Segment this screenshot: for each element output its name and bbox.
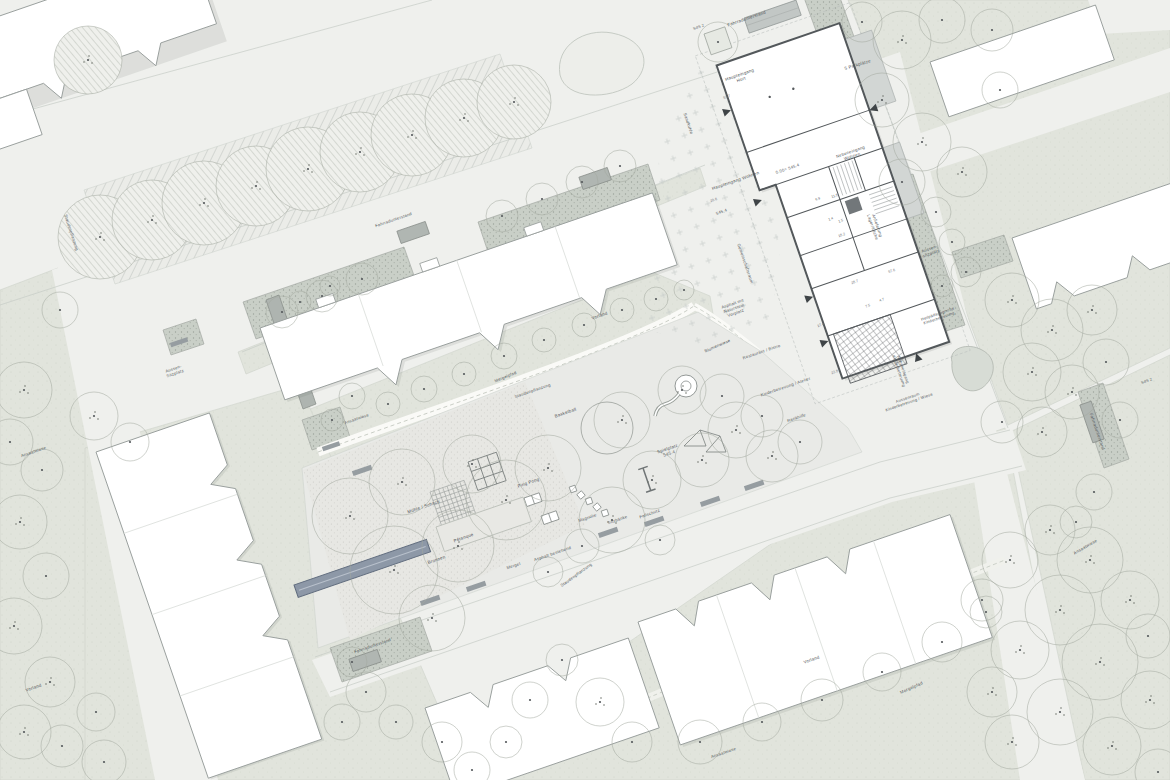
- tree-trunk-dot: [1031, 371, 1033, 373]
- tree-trunk-dot: [1059, 609, 1061, 611]
- tree-trunk-dot: [1049, 529, 1051, 531]
- tree-canopy-dot: [432, 613, 434, 615]
- tree-trunk-dot: [341, 721, 343, 723]
- tree-canopy-dot: [360, 147, 362, 149]
- tree-canopy-dot: [1052, 325, 1054, 327]
- tree-canopy-dot: [1037, 433, 1039, 435]
- tree-trunk-dot: [881, 671, 883, 673]
- tree-trunk-dot: [281, 311, 283, 313]
- tree-canopy-dot: [543, 469, 545, 471]
- tree-trunk-dot: [321, 295, 323, 297]
- tree-trunk-dot: [631, 741, 633, 743]
- tree-trunk-dot: [1119, 419, 1121, 421]
- tree-trunk-dot: [1089, 559, 1091, 561]
- tree-canopy-dot: [453, 547, 455, 549]
- tree-canopy-dot: [1115, 748, 1117, 750]
- tree-trunk-dot: [505, 741, 507, 743]
- tree-canopy-dot: [394, 565, 396, 567]
- tree-canopy-dot: [435, 620, 437, 622]
- tree-canopy-dot: [207, 205, 209, 207]
- tree-canopy-dot: [472, 459, 474, 461]
- tree-canopy-dot: [775, 458, 777, 460]
- tree-canopy-dot: [1047, 331, 1049, 333]
- tree-trunk-dot: [965, 271, 967, 273]
- tree-canopy-dot: [256, 181, 258, 183]
- tree-trunk-dot: [49, 681, 51, 683]
- tree-trunk-dot: [1059, 711, 1061, 713]
- tree-canopy-dot: [50, 677, 52, 679]
- tree-canopy-dot: [20, 517, 22, 519]
- tree-trunk-dot: [561, 659, 563, 661]
- tree-canopy-dot: [24, 385, 26, 387]
- tree-canopy-dot: [736, 425, 738, 427]
- tree-canopy-dot: [1072, 387, 1074, 389]
- tree-trunk-dot: [401, 481, 403, 483]
- tree-canopy-dot: [882, 95, 884, 97]
- tree-canopy-dot: [345, 517, 347, 519]
- tree-canopy-dot: [509, 502, 511, 504]
- tree-canopy-dot: [1015, 744, 1017, 746]
- tree-trunk-dot: [329, 285, 331, 287]
- tree-trunk-dot: [349, 515, 351, 517]
- tree-canopy-dot: [1055, 611, 1057, 613]
- tree-canopy-dot: [917, 143, 919, 145]
- tree-trunk-dot: [621, 309, 623, 311]
- tree-trunk-dot: [1129, 599, 1131, 601]
- tree-canopy-dot: [1053, 532, 1055, 534]
- tree-trunk-dot: [1099, 661, 1101, 663]
- tree-trunk-dot: [395, 721, 397, 723]
- tree-trunk-dot: [61, 745, 63, 747]
- tree-trunk-dot: [503, 355, 505, 357]
- tree-trunk-dot: [1009, 559, 1011, 561]
- tree-trunk-dot: [1011, 741, 1013, 743]
- tree-trunk-dot: [761, 721, 763, 723]
- tree-canopy-dot: [517, 104, 519, 106]
- tree-canopy-dot: [647, 481, 649, 483]
- tree-canopy-dot: [259, 188, 261, 190]
- tree-trunk-dot: [991, 691, 993, 693]
- tree-canopy-dot: [1133, 602, 1135, 604]
- tree-trunk-dot: [1157, 771, 1159, 773]
- tree-trunk-dot: [543, 339, 545, 341]
- tree-canopy-dot: [1107, 747, 1109, 749]
- tree-canopy-dot: [45, 683, 47, 685]
- tree-trunk-dot: [583, 324, 585, 326]
- tree-trunk-dot: [423, 388, 425, 390]
- tree-trunk-dot: [961, 171, 963, 173]
- tree-canopy-dot: [1042, 427, 1044, 429]
- tree-canopy-dot: [987, 693, 989, 695]
- tree-trunk-dot: [659, 539, 661, 541]
- tree-trunk-dot: [103, 761, 105, 763]
- tree-canopy-dot: [363, 154, 365, 156]
- tree-canopy-dot: [147, 221, 149, 223]
- tree-trunk-dot: [761, 415, 763, 417]
- tree-canopy-dot: [965, 174, 967, 176]
- tree-trunk-dot: [87, 59, 89, 61]
- tree-trunk-dot: [203, 202, 205, 204]
- tree-canopy-dot: [103, 239, 105, 241]
- tree-canopy-dot: [1093, 562, 1095, 564]
- tree-canopy-dot: [612, 515, 614, 517]
- tree-canopy-dot: [415, 137, 417, 139]
- tree-canopy-dot: [1095, 663, 1097, 665]
- tree-canopy-dot: [199, 204, 201, 206]
- tree-canopy-dot: [925, 144, 927, 146]
- tree-canopy-dot: [427, 619, 429, 621]
- tree-trunk-dot: [365, 691, 367, 693]
- tree-trunk-dot: [1149, 699, 1151, 701]
- tree-trunk-dot: [505, 499, 507, 501]
- tree-canopy-dot: [1035, 374, 1037, 376]
- tree-trunk-dot: [701, 459, 703, 461]
- tree-canopy-dot: [24, 727, 26, 729]
- tree-canopy-dot: [407, 136, 409, 138]
- tree-canopy-dot: [311, 171, 313, 173]
- tree-canopy-dot: [772, 451, 774, 453]
- tree-canopy-dot: [83, 61, 85, 63]
- tree-canopy-dot: [97, 418, 99, 420]
- tree-canopy-dot: [19, 391, 21, 393]
- tree-trunk-dot: [771, 455, 773, 457]
- tree-canopy-dot: [617, 421, 619, 423]
- tree-canopy-dot: [461, 548, 463, 550]
- tree-canopy-dot: [1060, 707, 1062, 709]
- tree-canopy-dot: [1100, 657, 1102, 659]
- tree-canopy-dot: [1012, 737, 1014, 739]
- tree-trunk-dot: [861, 21, 863, 23]
- tree-trunk-dot: [441, 741, 443, 743]
- tree-trunk-dot: [547, 467, 549, 469]
- tree-canopy-dot: [152, 215, 154, 217]
- tree-canopy-dot: [53, 684, 55, 686]
- tree-canopy-dot: [1125, 601, 1127, 603]
- tree-canopy-dot: [402, 477, 404, 479]
- tree-canopy-dot: [204, 198, 206, 200]
- tree-trunk-dot: [985, 611, 987, 613]
- tree-canopy-dot: [251, 187, 253, 189]
- tree-trunk-dot: [1147, 635, 1149, 637]
- tree-trunk-dot: [1041, 431, 1043, 433]
- tree-trunk-dot: [307, 168, 309, 170]
- tree-trunk-dot: [359, 151, 361, 153]
- tree-trunk-dot: [255, 185, 257, 187]
- tree-canopy-dot: [1015, 651, 1017, 653]
- tree-trunk-dot: [941, 641, 943, 643]
- tree-canopy-dot: [91, 62, 93, 64]
- tree-canopy-dot: [1130, 595, 1132, 597]
- tree-trunk-dot: [655, 298, 657, 300]
- tree-trunk-dot: [1071, 391, 1073, 393]
- tree-canopy-dot: [1013, 562, 1015, 564]
- tree-canopy-dot: [1055, 332, 1057, 334]
- tree-trunk-dot: [547, 571, 549, 573]
- tree-trunk-dot: [431, 617, 433, 619]
- tree-canopy-dot: [1075, 394, 1077, 396]
- tree-canopy-dot: [506, 495, 508, 497]
- tree-canopy-dot: [14, 621, 16, 623]
- tree-trunk-dot: [921, 141, 923, 143]
- tree-canopy-dot: [739, 432, 741, 434]
- tree-trunk-dot: [581, 181, 583, 183]
- tree-trunk-dot: [59, 309, 61, 311]
- tree-trunk-dot: [45, 575, 47, 577]
- site-plan-svg: 53.720.66.911.81.41.518.257.628.77.54.71…: [0, 0, 1170, 780]
- tree-trunk-dot: [581, 545, 583, 547]
- tree-trunk-dot: [651, 479, 653, 481]
- tree-canopy-dot: [412, 130, 414, 132]
- tree-canopy-dot: [1005, 561, 1007, 563]
- tree-trunk-dot: [619, 165, 621, 167]
- tree-trunk-dot: [501, 215, 503, 217]
- tree-canopy-dot: [389, 571, 391, 573]
- tree-canopy-dot: [23, 524, 25, 526]
- tree-trunk-dot: [1011, 299, 1013, 301]
- tree-trunk-dot: [621, 419, 623, 421]
- tree-trunk-dot: [463, 373, 465, 375]
- tree-canopy-dot: [355, 153, 357, 155]
- tree-canopy-dot: [1010, 555, 1012, 557]
- tree-canopy-dot: [1055, 713, 1057, 715]
- tree-canopy-dot: [1045, 434, 1047, 436]
- tree-canopy-dot: [1007, 301, 1009, 303]
- tree-trunk-dot: [463, 117, 465, 119]
- tree-canopy-dot: [459, 119, 461, 121]
- tree-canopy-dot: [19, 733, 21, 735]
- tree-trunk-dot: [23, 731, 25, 733]
- tree-canopy-dot: [767, 457, 769, 459]
- tree-canopy-dot: [1023, 652, 1025, 654]
- tree-canopy-dot: [1067, 393, 1069, 395]
- tree-trunk-dot: [941, 19, 943, 21]
- tree-canopy-dot: [1060, 605, 1062, 607]
- tree-canopy-dot: [1153, 702, 1155, 704]
- tree-canopy-dot: [897, 41, 899, 43]
- tree-trunk-dot: [151, 219, 153, 221]
- tree-canopy-dot: [1012, 295, 1014, 297]
- tree-canopy-dot: [397, 572, 399, 574]
- tree-canopy-dot: [88, 55, 90, 57]
- tree-canopy-dot: [17, 628, 19, 630]
- tree-canopy-dot: [514, 97, 516, 99]
- tree-canopy-dot: [551, 470, 553, 472]
- tree-canopy-dot: [877, 101, 879, 103]
- tree-canopy-dot: [1087, 311, 1089, 313]
- tree-canopy-dot: [27, 392, 29, 394]
- tree-trunk-dot: [99, 236, 101, 238]
- tree-canopy-dot: [100, 232, 102, 234]
- tree-trunk-dot: [393, 569, 395, 571]
- tree-trunk-dot: [981, 599, 983, 601]
- tree-canopy-dot: [905, 42, 907, 44]
- tree-trunk-dot: [387, 403, 389, 405]
- tree-trunk-dot: [1019, 649, 1021, 651]
- tree-canopy-dot: [475, 466, 477, 468]
- tree-trunk-dot: [1051, 329, 1053, 331]
- tree-trunk-dot: [901, 181, 903, 183]
- tree-trunk-dot: [95, 711, 97, 713]
- tree-canopy-dot: [902, 35, 904, 37]
- tree-canopy-dot: [682, 385, 684, 387]
- tree-canopy-dot: [94, 411, 96, 413]
- tree-trunk-dot: [19, 521, 21, 523]
- tree-trunk-dot: [41, 469, 43, 471]
- tree-trunk-dot: [361, 278, 363, 280]
- tree-trunk-dot: [93, 415, 95, 417]
- tree-trunk-dot: [717, 41, 719, 43]
- tree-canopy-dot: [1095, 312, 1097, 314]
- tree-trunk-dot: [799, 441, 801, 443]
- tree-canopy-dot: [89, 417, 91, 419]
- tree-canopy-dot: [885, 102, 887, 104]
- tree-trunk-dot: [457, 545, 459, 547]
- tree-canopy-dot: [350, 511, 352, 513]
- tree-canopy-dot: [1063, 714, 1065, 716]
- tree-canopy-dot: [1112, 741, 1114, 743]
- tree-trunk-dot: [351, 661, 353, 663]
- tree-trunk-dot: [129, 441, 131, 443]
- tree-canopy-dot: [1150, 695, 1152, 697]
- tree-trunk-dot: [1105, 361, 1107, 363]
- tree-trunk-dot: [901, 39, 903, 41]
- tree-canopy-dot: [464, 113, 466, 115]
- tree-canopy-dot: [1027, 373, 1029, 375]
- tree-trunk-dot: [351, 395, 353, 397]
- tree-canopy-dot: [353, 518, 355, 520]
- tree-canopy-dot: [308, 164, 310, 166]
- tree-trunk-dot: [471, 463, 473, 465]
- tree-canopy-dot: [1020, 645, 1022, 647]
- tree-trunk-dot: [683, 289, 685, 291]
- tree-trunk-dot: [699, 741, 701, 743]
- tree-trunk-dot: [951, 241, 953, 243]
- tree-canopy-dot: [1032, 367, 1034, 369]
- tree-canopy-dot: [467, 465, 469, 467]
- tree-canopy-dot: [655, 482, 657, 484]
- tree-trunk-dot: [881, 99, 883, 101]
- tree-canopy-dot: [1145, 701, 1147, 703]
- tree-canopy-dot: [962, 167, 964, 169]
- tree-trunk-dot: [471, 769, 473, 771]
- tree-canopy-dot: [1063, 612, 1065, 614]
- tree-trunk-dot: [941, 285, 943, 287]
- tree-canopy-dot: [1045, 531, 1047, 533]
- tree-canopy-dot: [1085, 561, 1087, 563]
- tree-canopy-dot: [1007, 743, 1009, 745]
- tree-canopy-dot: [1090, 555, 1092, 557]
- tree-trunk-dot: [1093, 491, 1095, 493]
- tree-canopy-dot: [702, 455, 704, 457]
- tree-trunk-dot: [681, 389, 683, 391]
- tree-canopy-dot: [731, 431, 733, 433]
- tree-canopy-dot: [1050, 525, 1052, 527]
- tree-trunk-dot: [411, 134, 413, 136]
- tree-canopy-dot: [397, 483, 399, 485]
- tree-trunk-dot: [599, 701, 601, 703]
- tree-canopy-dot: [603, 704, 605, 706]
- tree-trunk-dot: [999, 89, 1001, 91]
- tree-canopy-dot: [509, 103, 511, 105]
- tree-canopy-dot: [957, 173, 959, 175]
- tree-trunk-dot: [1091, 309, 1093, 311]
- tree-canopy-dot: [1092, 305, 1094, 307]
- tree-trunk-dot: [935, 211, 937, 213]
- tree-canopy-dot: [501, 501, 503, 503]
- tree-canopy-dot: [9, 627, 11, 629]
- tree-trunk-dot: [23, 389, 25, 391]
- tree-canopy-dot: [697, 461, 699, 463]
- tree-canopy-dot: [677, 391, 679, 393]
- tree-canopy-dot: [27, 734, 29, 736]
- tree-canopy-dot: [303, 170, 305, 172]
- site-plan-stage: 53.720.66.911.81.41.518.257.628.77.54.71…: [0, 0, 1170, 780]
- tree-trunk-dot: [821, 699, 823, 701]
- tree-canopy-dot: [992, 687, 994, 689]
- tree-canopy-dot: [622, 415, 624, 417]
- tree-canopy-dot: [95, 238, 97, 240]
- tree-trunk-dot: [991, 29, 993, 31]
- tree-trunk-dot: [513, 101, 515, 103]
- tree-trunk-dot: [331, 419, 333, 421]
- tree-canopy-dot: [1103, 664, 1105, 666]
- tree-canopy-dot: [625, 422, 627, 424]
- tree-canopy-dot: [595, 703, 597, 705]
- tree-trunk-dot: [1111, 745, 1113, 747]
- tree-canopy-dot: [600, 697, 602, 699]
- tree-canopy-dot: [15, 523, 17, 525]
- tree-trunk-dot: [721, 395, 723, 397]
- tree-canopy-dot: [685, 392, 687, 394]
- tree-canopy-dot: [922, 137, 924, 139]
- tree-trunk-dot: [299, 301, 301, 303]
- tree-canopy-dot: [467, 120, 469, 122]
- tree-canopy-dot: [155, 222, 157, 224]
- tree-canopy-dot: [1015, 302, 1017, 304]
- tree-trunk-dot: [541, 198, 543, 200]
- tree-canopy-dot: [995, 694, 997, 696]
- tree-trunk-dot: [529, 699, 531, 701]
- tree-trunk-dot: [9, 441, 11, 443]
- tree-trunk-dot: [735, 429, 737, 431]
- tree-canopy-dot: [705, 462, 707, 464]
- tree-canopy-dot: [405, 484, 407, 486]
- tree-trunk-dot: [13, 625, 15, 627]
- tree-canopy-dot: [652, 475, 654, 477]
- tree-trunk-dot: [1075, 521, 1077, 523]
- tree-trunk-dot: [1001, 421, 1003, 423]
- tree-canopy-dot: [548, 463, 550, 465]
